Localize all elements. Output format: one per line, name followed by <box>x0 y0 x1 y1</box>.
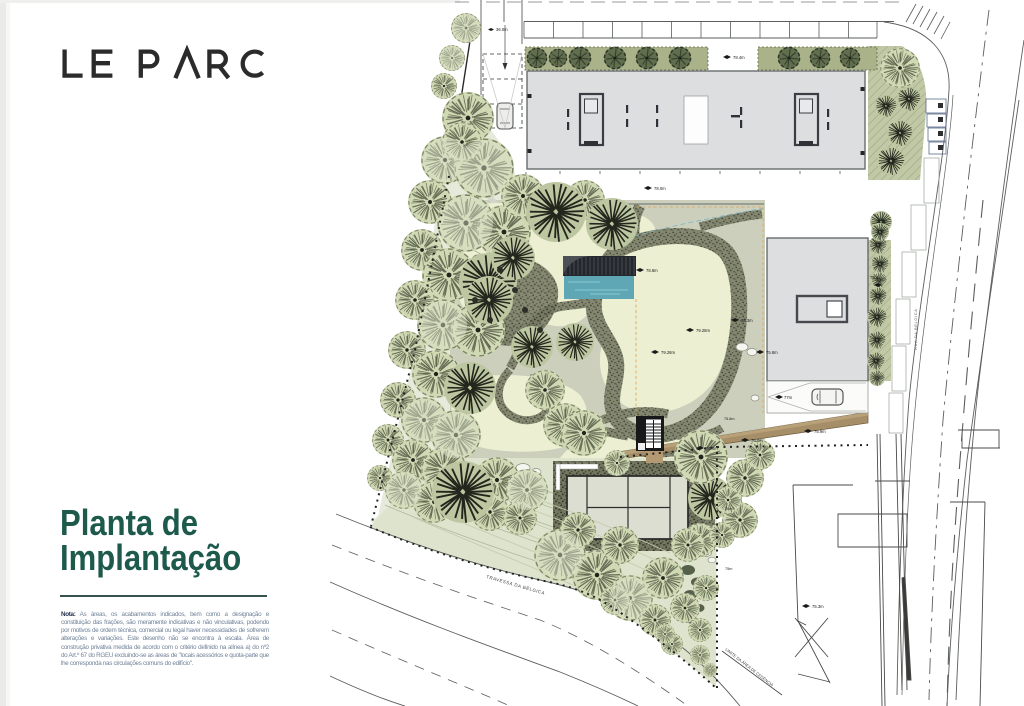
svg-text:78.4: 78.4 <box>870 275 879 280</box>
svg-text:77m: 77m <box>784 395 793 400</box>
svg-text:78.3m: 78.3m <box>741 318 753 323</box>
svg-text:75.8m: 75.8m <box>766 350 778 355</box>
svg-text:79.28m: 79.28m <box>661 350 675 355</box>
svg-text:75.8m: 75.8m <box>724 417 735 421</box>
svg-text:76m: 76m <box>725 507 732 511</box>
svg-text:76.0m: 76.0m <box>751 438 763 443</box>
svg-text:75.3m: 75.3m <box>812 604 824 609</box>
svg-text:78.4m: 78.4m <box>733 55 745 60</box>
svg-text:75m: 75m <box>725 567 732 571</box>
svg-text:75.9m: 75.9m <box>814 429 826 434</box>
svg-text:36.0m: 36.0m <box>496 27 508 32</box>
svg-text:79.28m: 79.28m <box>696 328 710 333</box>
svg-text:LIMITE DA ÁREA DE CEDÊNCIA: LIMITE DA ÁREA DE CEDÊNCIA <box>724 647 774 688</box>
svg-text:78.0m: 78.0m <box>654 186 666 191</box>
svg-text:78.8m: 78.8m <box>646 268 658 273</box>
svg-text:76.4m: 76.4m <box>706 446 718 451</box>
svg-text:RUA DA BÉLGICA: RUA DA BÉLGICA <box>913 308 918 350</box>
